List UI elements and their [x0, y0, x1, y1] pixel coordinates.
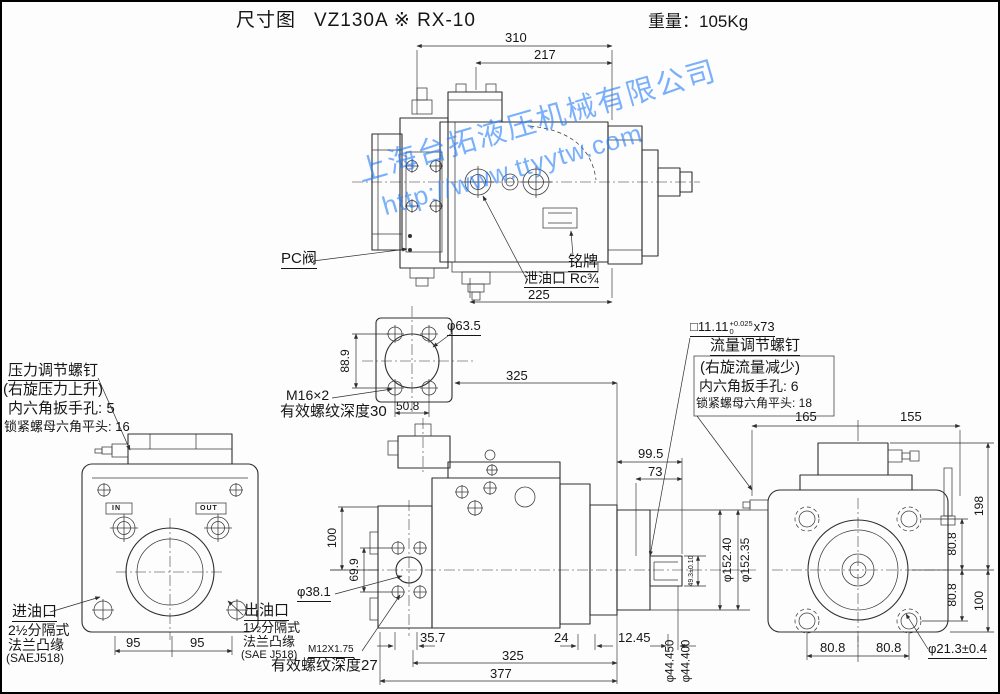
- dim-24: 24: [554, 631, 568, 646]
- dim-35-7: 35.7: [420, 631, 445, 646]
- dim-325-lower: 325: [502, 649, 524, 664]
- dim-225: 225: [528, 288, 550, 303]
- thread-m12: M12X1.75: [308, 644, 354, 658]
- dim-80-8-bl: 80.8: [820, 641, 845, 656]
- key-tol-lower: 0: [729, 328, 752, 336]
- dim-69-9: 69.9: [348, 558, 362, 581]
- dim-12-45: 12.45: [618, 631, 651, 646]
- label-pc-valve: PC阀: [281, 250, 317, 269]
- dim-325-upper: 325: [506, 369, 528, 384]
- dim-80-8-mid: 80.8: [946, 583, 960, 606]
- key-height-dim: 49.3±0.10: [688, 555, 696, 586]
- dim-50-8: 50.8: [396, 400, 419, 414]
- inlet-line2: 2½分隔式: [8, 622, 69, 638]
- outlet-title: 出油口: [244, 602, 289, 621]
- flow-note-title: 流量调节螺钉: [710, 337, 800, 356]
- dim-310: 310: [505, 31, 527, 46]
- key-spec-label: □11.11 +0.025 0 x73: [690, 320, 775, 337]
- port-in-mark: IN: [112, 505, 121, 513]
- dimension-drawing-page: 上海台拓液压机械有限公司 http://www.ttyytw.com 尺寸图 V…: [0, 0, 1000, 694]
- doc-type-label: 尺寸图: [236, 10, 296, 32]
- flow-note-line2: (右旋流量减少): [700, 359, 800, 376]
- dia-152-40: φ152.40: [721, 538, 735, 582]
- dim-80-8-br: 80.8: [876, 641, 901, 656]
- label-drain-port: 泄油口 Rc¾: [524, 270, 599, 288]
- dim-377: 377: [490, 667, 512, 682]
- dia-21-3: φ21.3±0.4: [928, 642, 987, 659]
- front-view-linework: [50, 434, 258, 657]
- port-out-mark: OUT: [200, 505, 218, 513]
- thread-m16: M16×2: [286, 387, 329, 403]
- dim-198: 198: [973, 496, 987, 516]
- pressure-note-line3: 内六角扳手孔: 5: [8, 400, 115, 417]
- outlet-line3: 法兰凸缘: [243, 635, 295, 650]
- dim-165: 165: [795, 410, 817, 425]
- dim-95-right: 95: [190, 636, 204, 651]
- dim-99-5: 99.5: [638, 447, 663, 462]
- pressure-note-line2: (右旋压力上升): [3, 381, 103, 398]
- model-label: VZ130A ※ RX-10: [314, 10, 476, 32]
- dim-100-side: 100: [326, 528, 340, 548]
- dia-63-5: φ63.5: [447, 319, 481, 336]
- key-spec-tolerance: +0.025 0: [729, 320, 752, 335]
- dia-152-35: φ152.35: [739, 538, 753, 582]
- dim-80-8-top: 80.8: [946, 532, 960, 555]
- weight-label: 重量：105Kg: [648, 12, 748, 32]
- dim-100-rear: 100: [973, 591, 987, 611]
- flow-note-line3: 内六角扳手孔: 6: [699, 378, 799, 394]
- flow-note-leader: [697, 416, 752, 490]
- dim-95-left: 95: [126, 636, 140, 651]
- drawing-linework: [0, 0, 1000, 694]
- top-view-linework: [313, 46, 700, 302]
- dim-73: 73: [648, 465, 662, 480]
- dia-44-450: φ44.450: [664, 640, 677, 683]
- flange-detail-linework: [332, 306, 617, 684]
- dia-38-1: φ38.1: [297, 585, 331, 602]
- thread-depth-30: 有效螺纹深度30: [280, 403, 387, 420]
- inlet-title: 进油口: [12, 603, 57, 622]
- pressure-note-line4: 锁紧螺母六角平头: 16: [4, 420, 130, 435]
- dia-44-400: φ44.400: [680, 640, 693, 683]
- key-spec-prefix: □11.11: [690, 320, 728, 335]
- key-spec-suffix: x73: [754, 320, 775, 335]
- dim-155: 155: [900, 410, 922, 425]
- inlet-line4: (SAEJ518): [6, 652, 64, 666]
- dim-88-9: 88.9: [339, 349, 353, 372]
- thread-depth-27: 有效螺纹深度27: [271, 657, 378, 674]
- dim-217: 217: [534, 48, 556, 63]
- pressure-note-title: 压力调节螺钉: [8, 362, 98, 381]
